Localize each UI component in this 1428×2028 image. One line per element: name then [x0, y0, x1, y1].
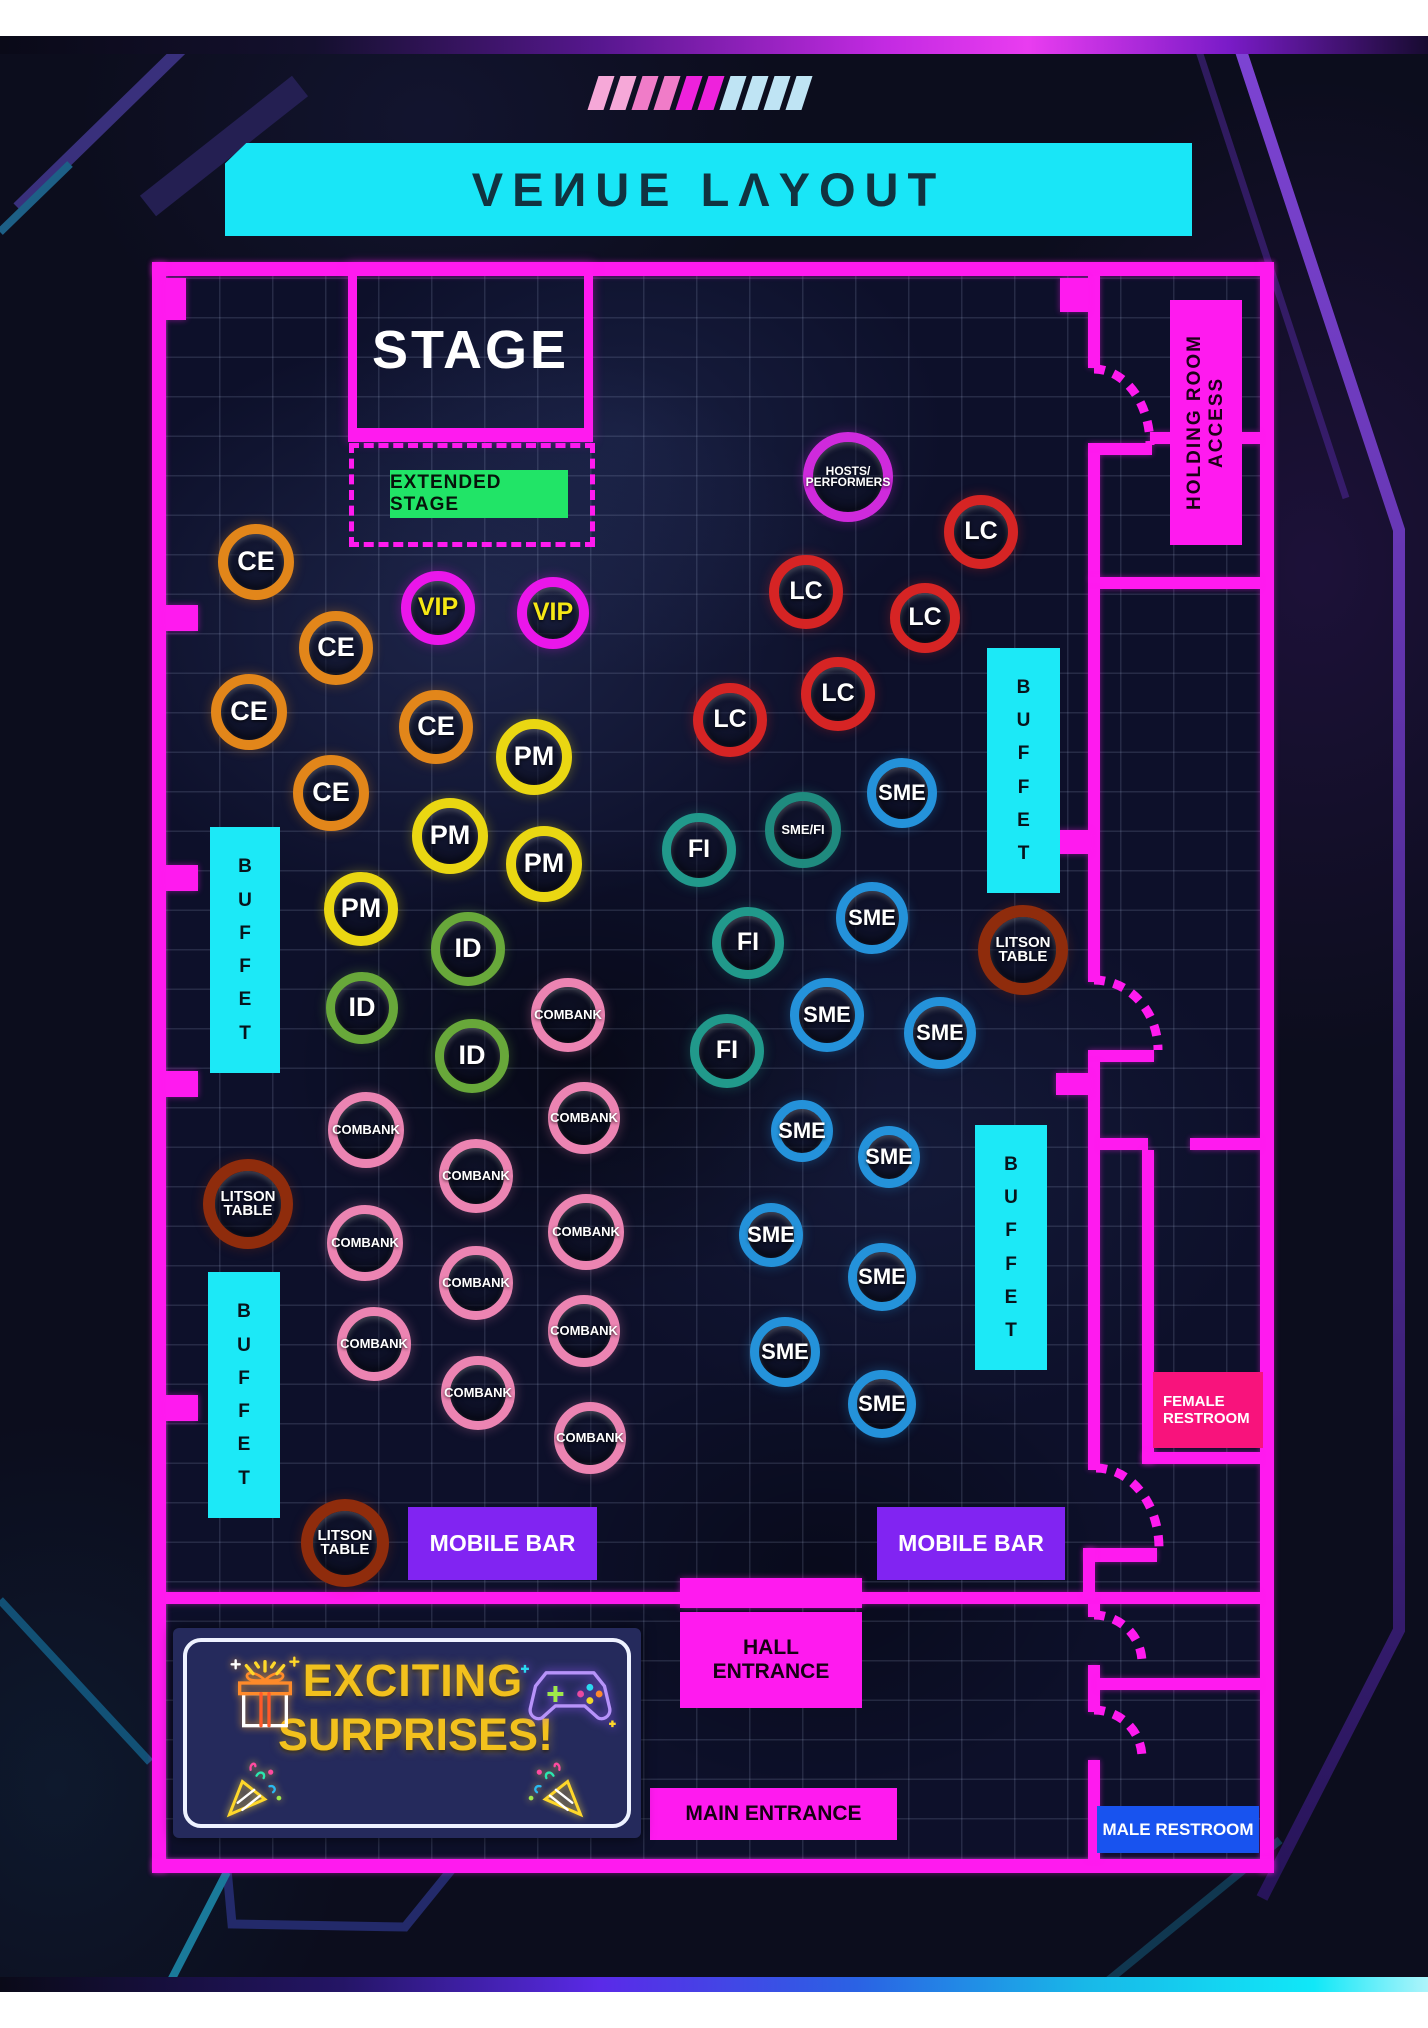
- buffet-left-2-label: B U F F E T: [237, 1295, 251, 1495]
- table-label: ID: [459, 1043, 486, 1069]
- table-sme: SME: [836, 882, 908, 954]
- buffet-left-2: B U F F E T: [208, 1272, 280, 1518]
- table-label: LITSON TABLE: [221, 1190, 276, 1219]
- wall-segment: [1260, 262, 1274, 1873]
- table-id: ID: [326, 972, 398, 1044]
- hall-entrance: HALL ENTRANCE: [680, 1612, 862, 1708]
- table-label: COMBANK: [332, 1124, 400, 1136]
- buffet-right-1-label: B U F F E T: [1017, 671, 1031, 871]
- table-label: FI: [716, 1039, 738, 1063]
- table-label: ID: [455, 936, 482, 962]
- table-combank: COMBANK: [531, 978, 605, 1052]
- wall-segment: [166, 1071, 198, 1097]
- table-ce: CE: [299, 611, 373, 685]
- table-combank: COMBANK: [328, 1092, 404, 1168]
- table-label: LITSON TABLE: [996, 936, 1051, 965]
- buffet-right-2-label: B U F F E T: [1004, 1148, 1018, 1348]
- wall-segment: [1088, 1050, 1154, 1062]
- table-sme: SME: [867, 758, 937, 828]
- bottom-gradient-bar: [0, 1977, 1428, 1992]
- table-hosts: HOSTS/ PERFORMERS: [803, 432, 893, 522]
- table-label: VIP: [418, 596, 458, 620]
- table-label: COMBANK: [331, 1237, 399, 1249]
- table-smefi: SME/FI: [765, 792, 841, 868]
- table-pm: PM: [412, 798, 488, 874]
- main-entrance-label: MAIN ENTRANCE: [685, 1802, 861, 1826]
- extended-stage-label: EXTENDED STAGE: [390, 472, 568, 516]
- wall-segment: [152, 1859, 1274, 1873]
- wall-segment: [166, 278, 186, 320]
- table-label: COMBANK: [442, 1277, 510, 1289]
- table-sme: SME: [739, 1203, 803, 1267]
- table-fi: FI: [712, 907, 784, 979]
- table-label: COMBANK: [340, 1338, 408, 1350]
- wall-segment: [1085, 1548, 1157, 1562]
- table-id: ID: [435, 1019, 509, 1093]
- mobile-bar-left-label: MOBILE BAR: [430, 1530, 576, 1557]
- table-label: COMBANK: [552, 1226, 620, 1238]
- table-label: SME: [747, 1225, 795, 1246]
- table-sme: SME: [858, 1126, 920, 1188]
- venue-layout-poster: VEИUE LΛYOUT STAGE EXTENDED STAGE B U F …: [0, 0, 1428, 2028]
- mobile-bar-left: MOBILE BAR: [408, 1507, 597, 1580]
- table-label: SME: [858, 1394, 906, 1415]
- mobile-bar-right-label: MOBILE BAR: [898, 1530, 1044, 1557]
- wall-segment: [1088, 276, 1100, 368]
- table-label: CE: [230, 699, 268, 725]
- main-entrance: MAIN ENTRANCE: [650, 1788, 897, 1840]
- wall-segment: [1060, 278, 1088, 312]
- female-restroom: FEMALE RESTROOM: [1153, 1372, 1263, 1448]
- top-gradient-bar: [0, 36, 1428, 54]
- table-vip: VIP: [517, 577, 589, 649]
- table-label: SME: [878, 783, 926, 804]
- table-label: CE: [317, 635, 355, 661]
- table-vip: VIP: [401, 571, 475, 645]
- table-lc: LC: [769, 555, 843, 629]
- table-lc: LC: [801, 657, 875, 731]
- table-label: COMBANK: [442, 1170, 510, 1182]
- gift-icon: [225, 1648, 305, 1734]
- table-combank: COMBANK: [548, 1082, 620, 1154]
- table-label: COMBANK: [534, 1009, 602, 1021]
- holding-room-access: HOLDING ROOM ACCESS: [1170, 300, 1242, 545]
- game-controller-icon: [517, 1654, 623, 1734]
- table-label: LITSON TABLE: [318, 1529, 373, 1558]
- table-label: PM: [514, 744, 555, 770]
- table-label: LC: [713, 708, 746, 732]
- table-lc: LC: [890, 583, 960, 653]
- table-sme: SME: [750, 1317, 820, 1387]
- wall-segment: [1088, 589, 1100, 982]
- table-label: PM: [524, 851, 565, 877]
- wall-segment: [166, 865, 198, 891]
- table-label: SME/FI: [781, 824, 824, 836]
- table-label: LC: [908, 606, 941, 630]
- table-lc: LC: [944, 495, 1018, 569]
- table-label: COMBANK: [556, 1432, 624, 1444]
- table-label: ID: [349, 995, 376, 1021]
- wall-segment: [1190, 1138, 1260, 1150]
- table-ce: CE: [218, 524, 294, 600]
- table-ce: CE: [211, 674, 287, 750]
- extended-stage-sign: EXTENDED STAGE: [390, 470, 568, 518]
- wall-segment: [1056, 1073, 1090, 1095]
- table-label: LC: [789, 580, 822, 604]
- extended-stage-area: EXTENDED STAGE: [349, 443, 595, 547]
- stage-area: STAGE: [348, 263, 593, 442]
- stage-label: STAGE: [372, 319, 569, 381]
- title-banner: VEИUE LΛYOUT: [225, 143, 1192, 236]
- table-litson: LITSON TABLE: [978, 905, 1068, 995]
- table-label: LC: [821, 682, 854, 706]
- table-label: SME: [848, 908, 896, 929]
- party-popper-icon: [217, 1758, 289, 1824]
- wall-segment: [166, 605, 198, 631]
- mobile-bar-right: MOBILE BAR: [877, 1507, 1065, 1580]
- wall-segment: [1088, 577, 1260, 589]
- wall-segment: [1100, 1138, 1148, 1150]
- table-label: PM: [341, 896, 382, 922]
- table-combank: COMBANK: [554, 1402, 626, 1474]
- surprises-banner: EXCITING SURPRISES!: [173, 1628, 641, 1838]
- hall-entrance-label: HALL ENTRANCE: [713, 1636, 830, 1684]
- table-label: COMBANK: [550, 1325, 618, 1337]
- holding-room-access-label: HOLDING ROOM ACCESS: [1184, 300, 1228, 545]
- table-label: SME: [803, 1005, 851, 1026]
- surprises-text: EXCITING SURPRISES!: [278, 1654, 548, 1762]
- wall-segment: [166, 1395, 198, 1421]
- table-combank: COMBANK: [439, 1139, 513, 1213]
- wall-segment: [680, 1578, 862, 1608]
- table-label: FI: [737, 931, 759, 955]
- female-restroom-label: FEMALE RESTROOM: [1163, 1393, 1250, 1427]
- table-litson: LITSON TABLE: [203, 1159, 293, 1249]
- table-fi: FI: [690, 1014, 764, 1088]
- table-combank: COMBANK: [441, 1356, 515, 1430]
- wall-segment: [1083, 1548, 1095, 1600]
- buffet-right-1: B U F F E T: [987, 648, 1060, 893]
- table-pm: PM: [506, 826, 582, 902]
- male-restroom: MALE RESTROOM: [1097, 1806, 1259, 1853]
- table-sme: SME: [904, 997, 976, 1069]
- surprises-line1: EXCITING: [278, 1654, 548, 1708]
- bottom-white-strip: [0, 1992, 1428, 2028]
- wall-segment: [1088, 1062, 1100, 1470]
- table-combank: COMBANK: [337, 1307, 411, 1381]
- table-label: CE: [237, 549, 275, 575]
- top-white-strip: [0, 0, 1428, 36]
- buffet-left-1: B U F F E T: [210, 827, 280, 1073]
- table-label: SME: [916, 1023, 964, 1044]
- table-label: HOSTS/ PERFORMERS: [806, 466, 891, 489]
- surprises-line2: SURPRISES!: [278, 1708, 548, 1762]
- table-combank: COMBANK: [327, 1205, 403, 1281]
- table-label: VIP: [533, 601, 573, 625]
- buffet-right-2: B U F F E T: [975, 1125, 1047, 1370]
- table-label: COMBANK: [444, 1387, 512, 1399]
- table-pm: PM: [324, 872, 398, 946]
- table-lc: LC: [693, 683, 767, 757]
- table-label: LC: [964, 520, 997, 544]
- wall-segment: [152, 262, 1274, 276]
- buffet-left-1-label: B U F F E T: [238, 850, 252, 1050]
- table-ce: CE: [399, 690, 473, 764]
- table-litson: LITSON TABLE: [301, 1499, 389, 1587]
- table-sme: SME: [790, 978, 864, 1052]
- decorative-slashes: [593, 76, 807, 110]
- male-restroom-label: MALE RESTROOM: [1102, 1820, 1253, 1840]
- table-label: SME: [858, 1267, 906, 1288]
- table-id: ID: [431, 912, 505, 986]
- table-combank: COMBANK: [548, 1194, 624, 1270]
- table-combank: COMBANK: [548, 1295, 620, 1367]
- table-label: SME: [778, 1121, 826, 1142]
- party-popper-icon: [521, 1758, 593, 1824]
- table-label: FI: [688, 838, 710, 862]
- table-pm: PM: [496, 719, 572, 795]
- wall-segment: [1056, 830, 1090, 854]
- wall-segment: [1088, 453, 1100, 579]
- wall-segment: [1142, 1452, 1260, 1464]
- table-ce: CE: [293, 755, 369, 831]
- slash-mark: [785, 76, 812, 110]
- table-sme: SME: [848, 1243, 916, 1311]
- table-label: COMBANK: [550, 1112, 618, 1124]
- table-label: CE: [312, 780, 350, 806]
- wall-segment: [1097, 1678, 1260, 1690]
- table-combank: COMBANK: [439, 1246, 513, 1320]
- table-sme: SME: [848, 1370, 916, 1438]
- table-label: SME: [865, 1147, 913, 1168]
- page-title: VEИUE LΛYOUT: [472, 162, 945, 217]
- wall-segment: [1088, 1604, 1100, 1617]
- wall-segment: [152, 262, 166, 1873]
- table-label: PM: [430, 823, 471, 849]
- table-fi: FI: [662, 813, 736, 887]
- table-label: SME: [761, 1342, 809, 1363]
- table-sme: SME: [771, 1100, 833, 1162]
- table-label: CE: [417, 714, 455, 740]
